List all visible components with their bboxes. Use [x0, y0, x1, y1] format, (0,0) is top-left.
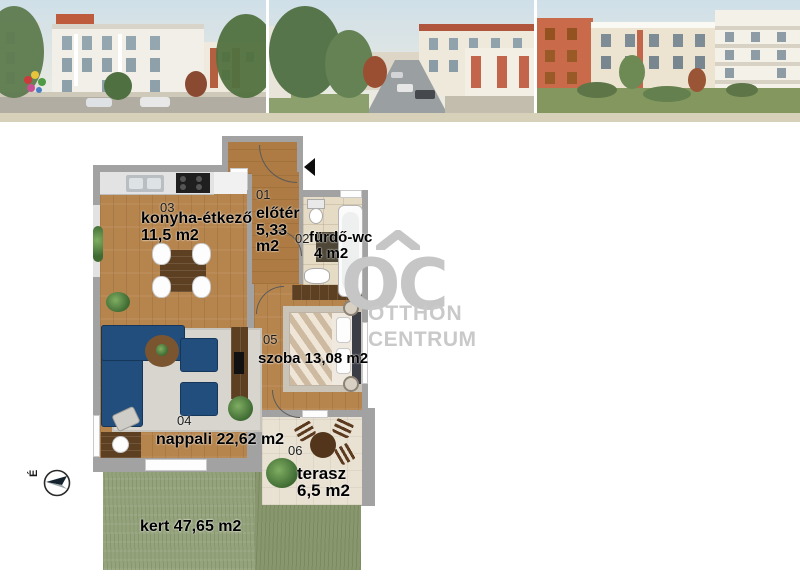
stove-burner — [196, 176, 202, 182]
room-area-kitchen: 11,5 m2 — [141, 227, 199, 245]
dining-chair — [192, 243, 211, 265]
dining-chair — [152, 243, 171, 265]
living-plant-icon — [106, 292, 130, 312]
dining-chair — [152, 276, 171, 298]
floorplan-listing-image: 03 konyha-étkező 11,5 m2 01 előtér 5,33 … — [0, 0, 800, 579]
kitchen-worktop — [214, 172, 247, 194]
desk-chair — [112, 436, 129, 453]
terrace-door-sill — [302, 410, 328, 418]
room-label-bedroom: szoba 13,08 m2 — [258, 350, 368, 367]
bathroom-window — [340, 190, 362, 198]
building-render-2 — [269, 0, 534, 113]
hall-plant-icon — [228, 396, 253, 421]
entrance-arrow-icon — [304, 158, 315, 176]
room-area-hall-2: m2 — [256, 238, 279, 256]
terrace-plant-icon — [266, 458, 298, 488]
sink-basin-right — [147, 178, 161, 189]
room-number-bathroom: 02 — [295, 231, 309, 246]
sink-basin-left — [129, 178, 143, 189]
armchair-2 — [180, 382, 218, 416]
compass-letter: É — [27, 470, 40, 477]
room-area-terrace: 6,5 m2 — [297, 481, 350, 501]
dining-chair — [192, 276, 211, 298]
stove-burner — [180, 184, 186, 190]
garden-label: kert 47,65 m2 — [140, 518, 241, 536]
room-label-living: nappali 22,62 m2 — [156, 431, 284, 449]
room-number-living: 04 — [177, 413, 191, 428]
building-render-3 — [537, 0, 800, 113]
toilet-bowl — [309, 208, 323, 224]
tv-screen — [234, 352, 244, 374]
bed-blanket — [290, 313, 332, 385]
room-label-kitchen: konyha-étkező — [141, 210, 252, 228]
bathroom-sink — [304, 268, 330, 284]
compass-north-indicator: É — [24, 463, 76, 503]
living-side-window — [93, 415, 100, 457]
watermark-line1: OTTHON — [368, 303, 463, 324]
stove-burner — [180, 176, 186, 182]
building-photo-3 — [537, 0, 800, 113]
photo-strip-border — [0, 113, 800, 122]
watermark-line2: CENTRUM — [368, 329, 477, 350]
room-number-terrace: 06 — [288, 443, 302, 458]
armchair-1 — [180, 338, 218, 372]
building-photo-2 — [269, 0, 534, 113]
building-photo-1 — [0, 0, 266, 113]
nightstand-lamp — [343, 376, 359, 392]
building-render-1 — [0, 0, 266, 113]
terrace-table — [310, 432, 336, 458]
kitchen-plant-icon — [93, 226, 103, 262]
room-label-hall: előtér — [256, 205, 300, 223]
room-number-bedroom: 05 — [263, 332, 277, 347]
table-plant-icon — [156, 344, 168, 356]
room-number-hall: 01 — [256, 187, 270, 202]
stove-burner — [196, 184, 202, 190]
living-window — [145, 459, 207, 471]
